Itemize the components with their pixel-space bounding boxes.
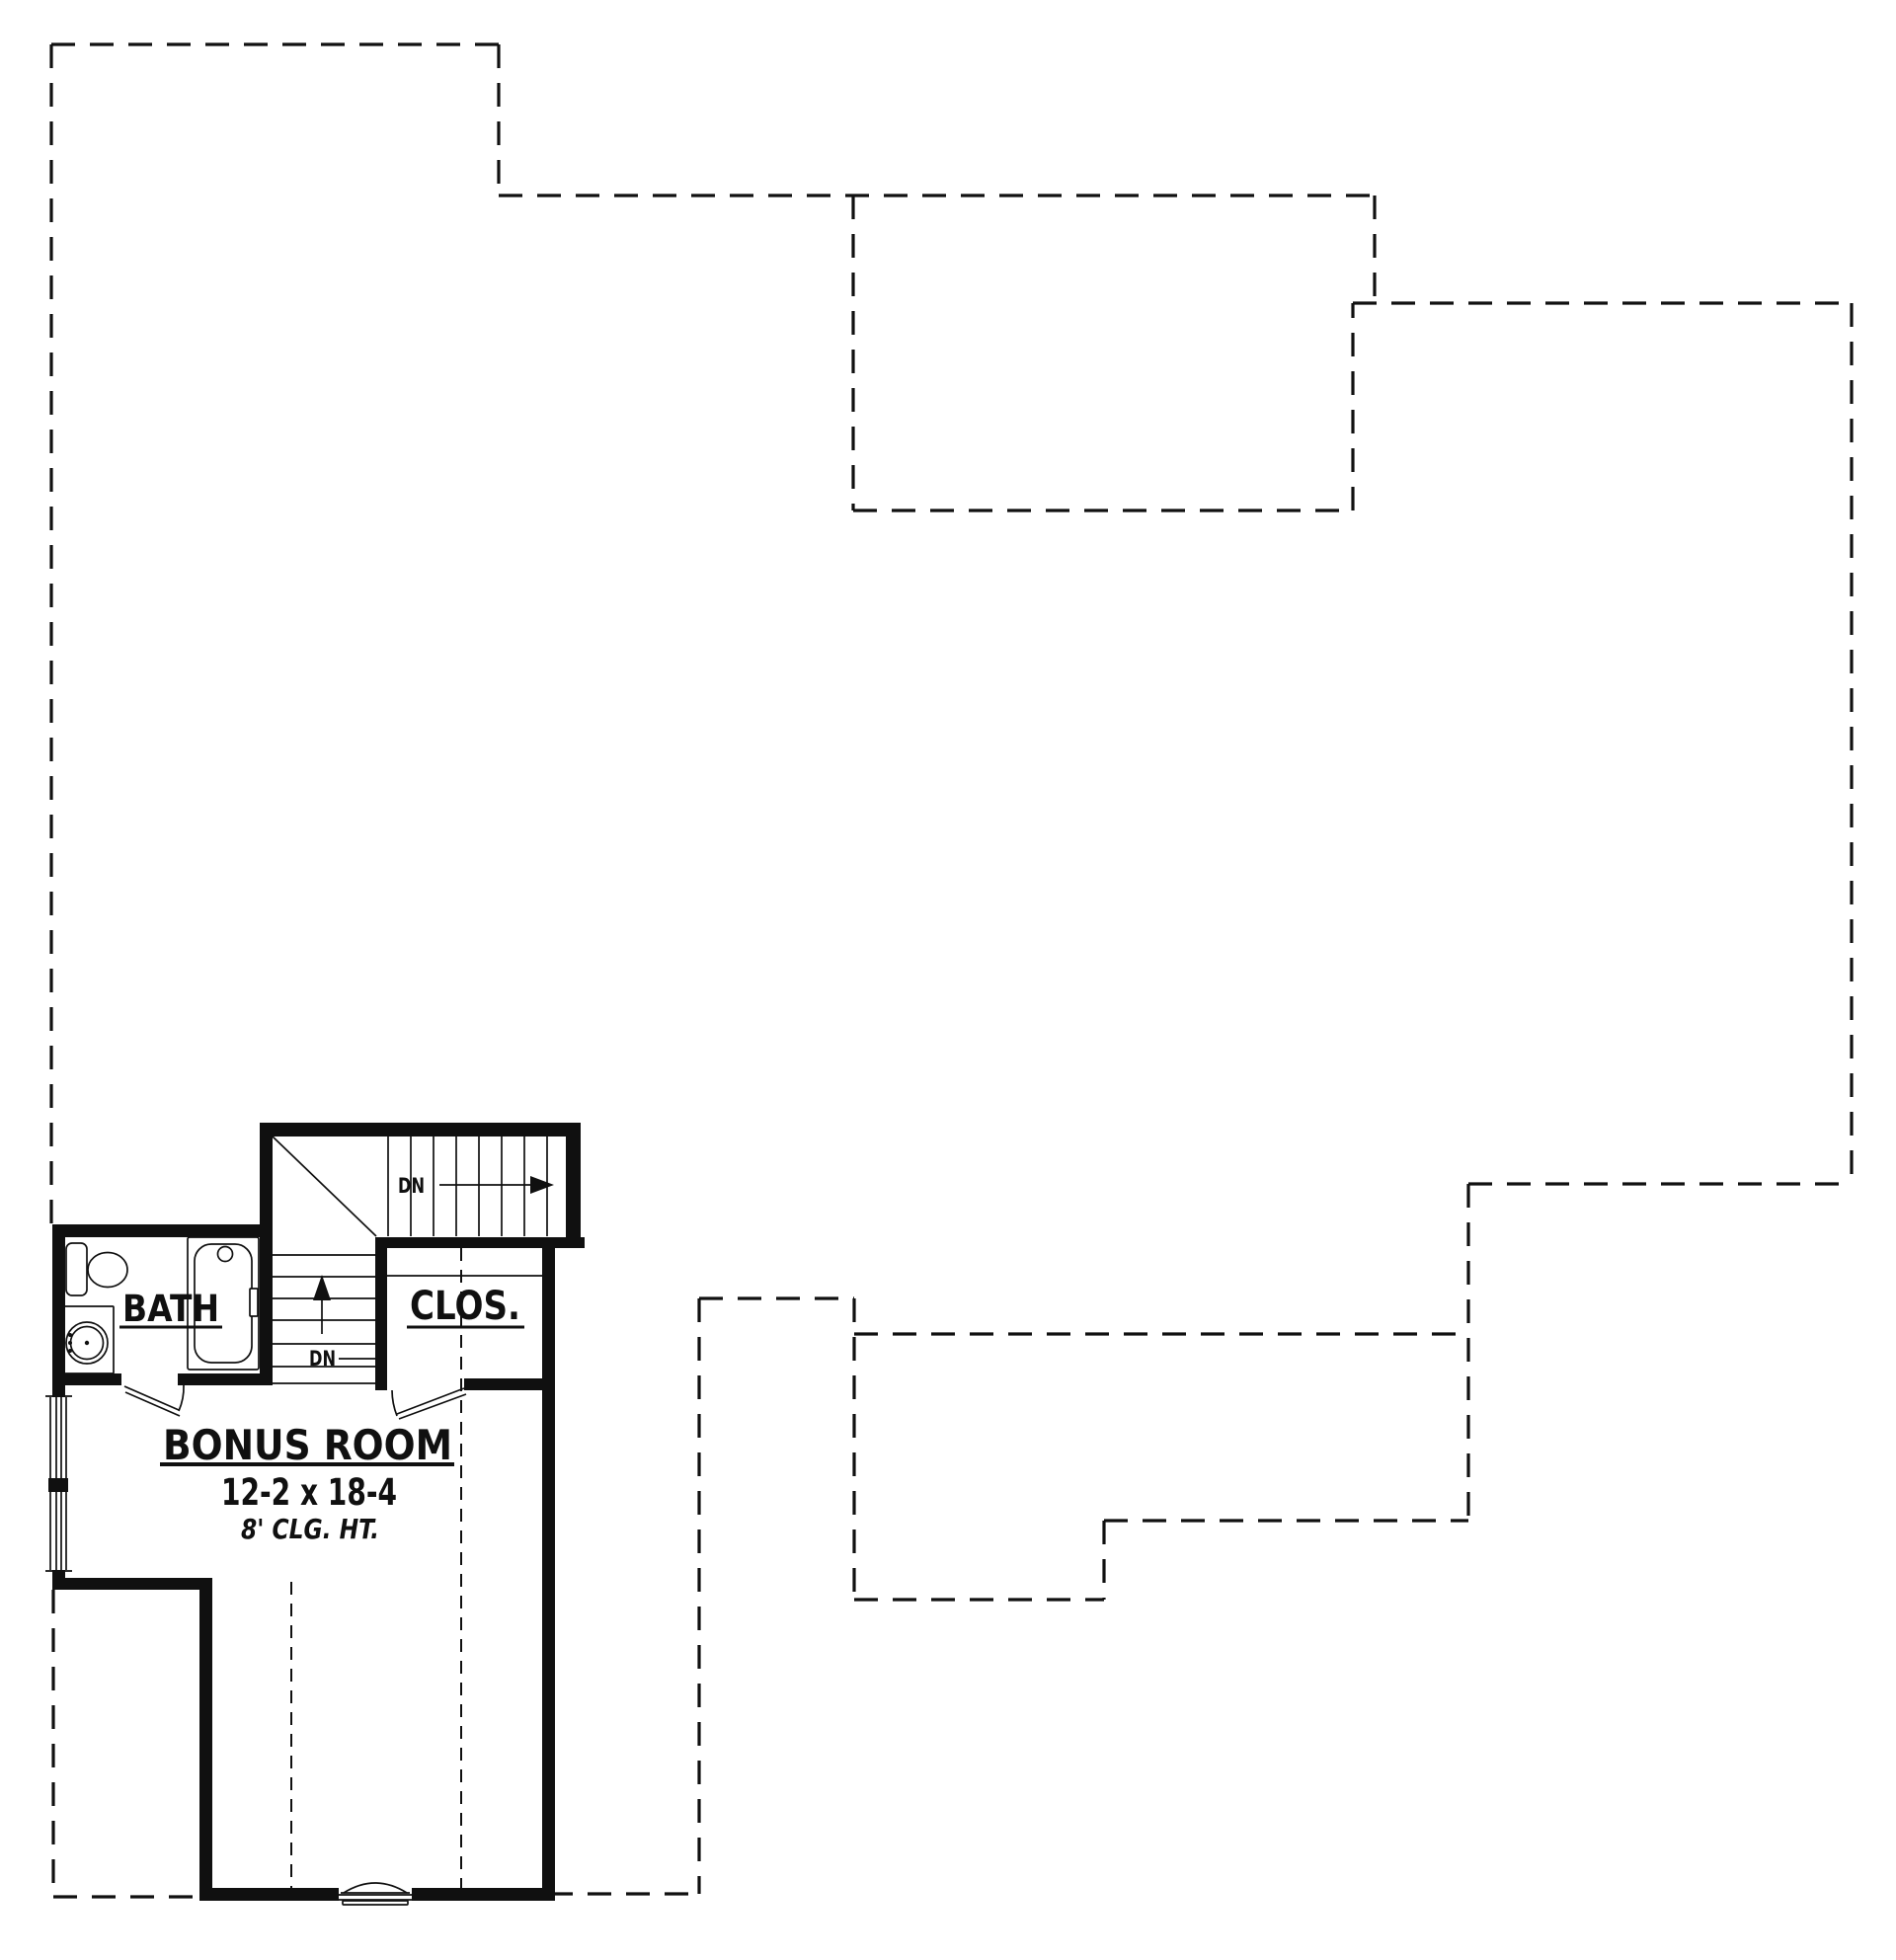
toilet-tank [66, 1243, 87, 1295]
detail-line [124, 1386, 179, 1410]
sink-faucet-dot [68, 1341, 72, 1345]
wall [412, 1888, 555, 1901]
sink-faucet-dot [68, 1333, 72, 1337]
dormer-arch [344, 1883, 407, 1893]
label-dn_upper: DN [398, 1174, 425, 1198]
bathtub-faucet [218, 1247, 233, 1262]
sink-drain [85, 1341, 89, 1345]
wall [199, 1578, 212, 1901]
wall [375, 1237, 387, 1390]
toilet-bowl [88, 1253, 127, 1288]
wall [464, 1378, 555, 1390]
wall [52, 1385, 65, 1397]
dormer-sill [343, 1901, 408, 1905]
wall [199, 1888, 339, 1901]
closet-door-swing [392, 1390, 397, 1416]
wall [48, 1478, 68, 1492]
wall [52, 1224, 65, 1385]
wall [52, 1224, 273, 1237]
label-bonus: BONUS ROOM [163, 1421, 452, 1469]
detail-line [399, 1394, 466, 1419]
wall [260, 1123, 580, 1137]
detail-line [273, 1137, 376, 1236]
floor-plan-drawing: BATHCLOS.BONUS ROOM12-2 x 18-48' CLG. HT… [0, 0, 1896, 1960]
wall [566, 1123, 581, 1248]
sink-faucet-dot [68, 1349, 72, 1353]
dormer-sill [337, 1895, 414, 1900]
label-clos: CLOS. [410, 1284, 520, 1329]
direction-arrowhead [313, 1275, 331, 1300]
detail-line [125, 1392, 180, 1416]
direction-arrowhead [530, 1176, 554, 1194]
detail-line [397, 1388, 464, 1414]
wall [178, 1373, 268, 1385]
label-clg: 8' CLG. HT. [241, 1513, 379, 1545]
bath-door-swing [179, 1385, 184, 1411]
wall [375, 1237, 585, 1248]
wall [542, 1248, 555, 1390]
label-bath: BATH [122, 1288, 219, 1330]
floor-plan-page: BATHCLOS.BONUS ROOM12-2 x 18-48' CLG. HT… [0, 0, 1896, 1960]
wall [542, 1390, 555, 1901]
wall [260, 1123, 273, 1385]
wall [52, 1373, 121, 1385]
label-dn_lower: DN [309, 1347, 336, 1371]
label-dims: 12-2 x 18-4 [221, 1471, 397, 1514]
bathtub-ledge [250, 1289, 258, 1316]
wall [52, 1578, 212, 1590]
